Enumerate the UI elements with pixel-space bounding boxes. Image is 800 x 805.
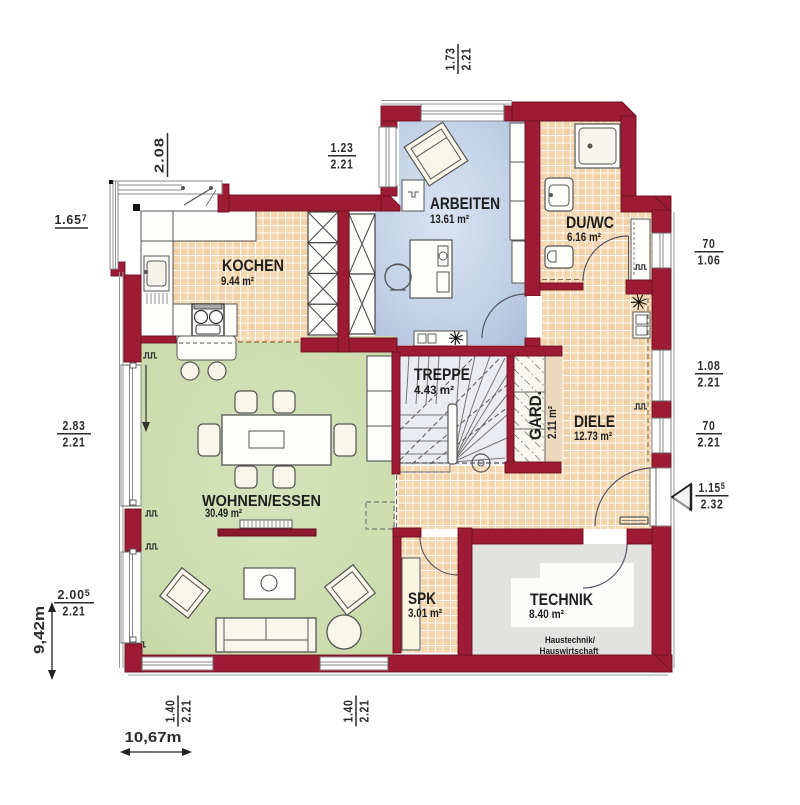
svg-text:9.44 m²: 9.44 m²: [221, 274, 254, 288]
svg-text:1.06: 1.06: [698, 254, 721, 268]
svg-text:70: 70: [703, 419, 716, 433]
svg-text:3.01 m²: 3.01 m²: [408, 606, 442, 620]
svg-text:8.40 m²: 8.40 m²: [529, 607, 564, 621]
svg-text:Hauswirtschaft: Hauswirtschaft: [540, 646, 600, 657]
svg-text:6.16 m²: 6.16 m²: [567, 230, 601, 244]
svg-text:1.73: 1.73: [444, 48, 458, 71]
svg-text:2.21: 2.21: [180, 700, 194, 723]
svg-text:30.49 m²: 30.49 m²: [205, 506, 242, 520]
svg-text:13.61 m²: 13.61 m²: [430, 212, 469, 226]
svg-text:2.21: 2.21: [460, 48, 474, 71]
svg-text:2.21: 2.21: [331, 158, 354, 172]
svg-text:KOCHEN: KOCHEN: [222, 256, 284, 275]
svg-text:TREPPE: TREPPE: [414, 365, 470, 384]
svg-text:Haustechnik/: Haustechnik/: [545, 635, 595, 646]
svg-text:GARD.: GARD.: [526, 391, 545, 440]
svg-text:2.32: 2.32: [701, 498, 724, 512]
svg-text:2.08: 2.08: [153, 137, 167, 173]
svg-text:2.21: 2.21: [698, 376, 721, 390]
svg-text:1.23: 1.23: [331, 141, 354, 155]
svg-text:1.40: 1.40: [342, 700, 356, 723]
svg-text:10,67m: 10,67m: [125, 729, 182, 746]
svg-text:4.43 m²: 4.43 m²: [414, 383, 454, 397]
svg-text:1.08: 1.08: [698, 359, 721, 373]
svg-text:1.40: 1.40: [164, 700, 178, 723]
svg-text:12.73 m²: 12.73 m²: [574, 429, 612, 443]
svg-text:ARBEITEN: ARBEITEN: [430, 194, 500, 213]
svg-text:2.21: 2.21: [63, 436, 86, 450]
svg-text:2.11 m²: 2.11 m²: [547, 406, 559, 439]
svg-text:9,42m: 9,42m: [32, 606, 48, 654]
svg-text:2.21: 2.21: [63, 605, 86, 619]
svg-text:2.83: 2.83: [63, 419, 86, 433]
svg-text:70: 70: [703, 237, 716, 251]
svg-text:2.21: 2.21: [698, 436, 721, 450]
svg-text:2.21: 2.21: [358, 700, 372, 723]
